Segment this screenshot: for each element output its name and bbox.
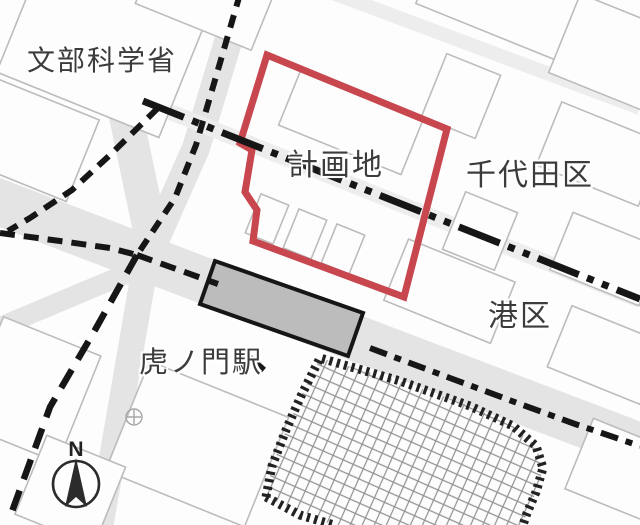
compass-north-label: N (68, 438, 83, 461)
label-minato-ward: 港区 (488, 302, 552, 332)
label-ministry-of-education: 文部科学省 (27, 47, 177, 75)
label-chiyoda-ward: 千代田区 (466, 161, 594, 191)
label-toranomon-station: 虎ノ門駅 (139, 349, 263, 378)
post-office-symbol (126, 409, 142, 425)
label-planning-site: 計画地 (288, 151, 384, 181)
map-canvas: N (0, 0, 640, 525)
toranomon-area-map: N 文部科学省 計画地 千代田区 港区 虎ノ門駅 (0, 0, 640, 525)
